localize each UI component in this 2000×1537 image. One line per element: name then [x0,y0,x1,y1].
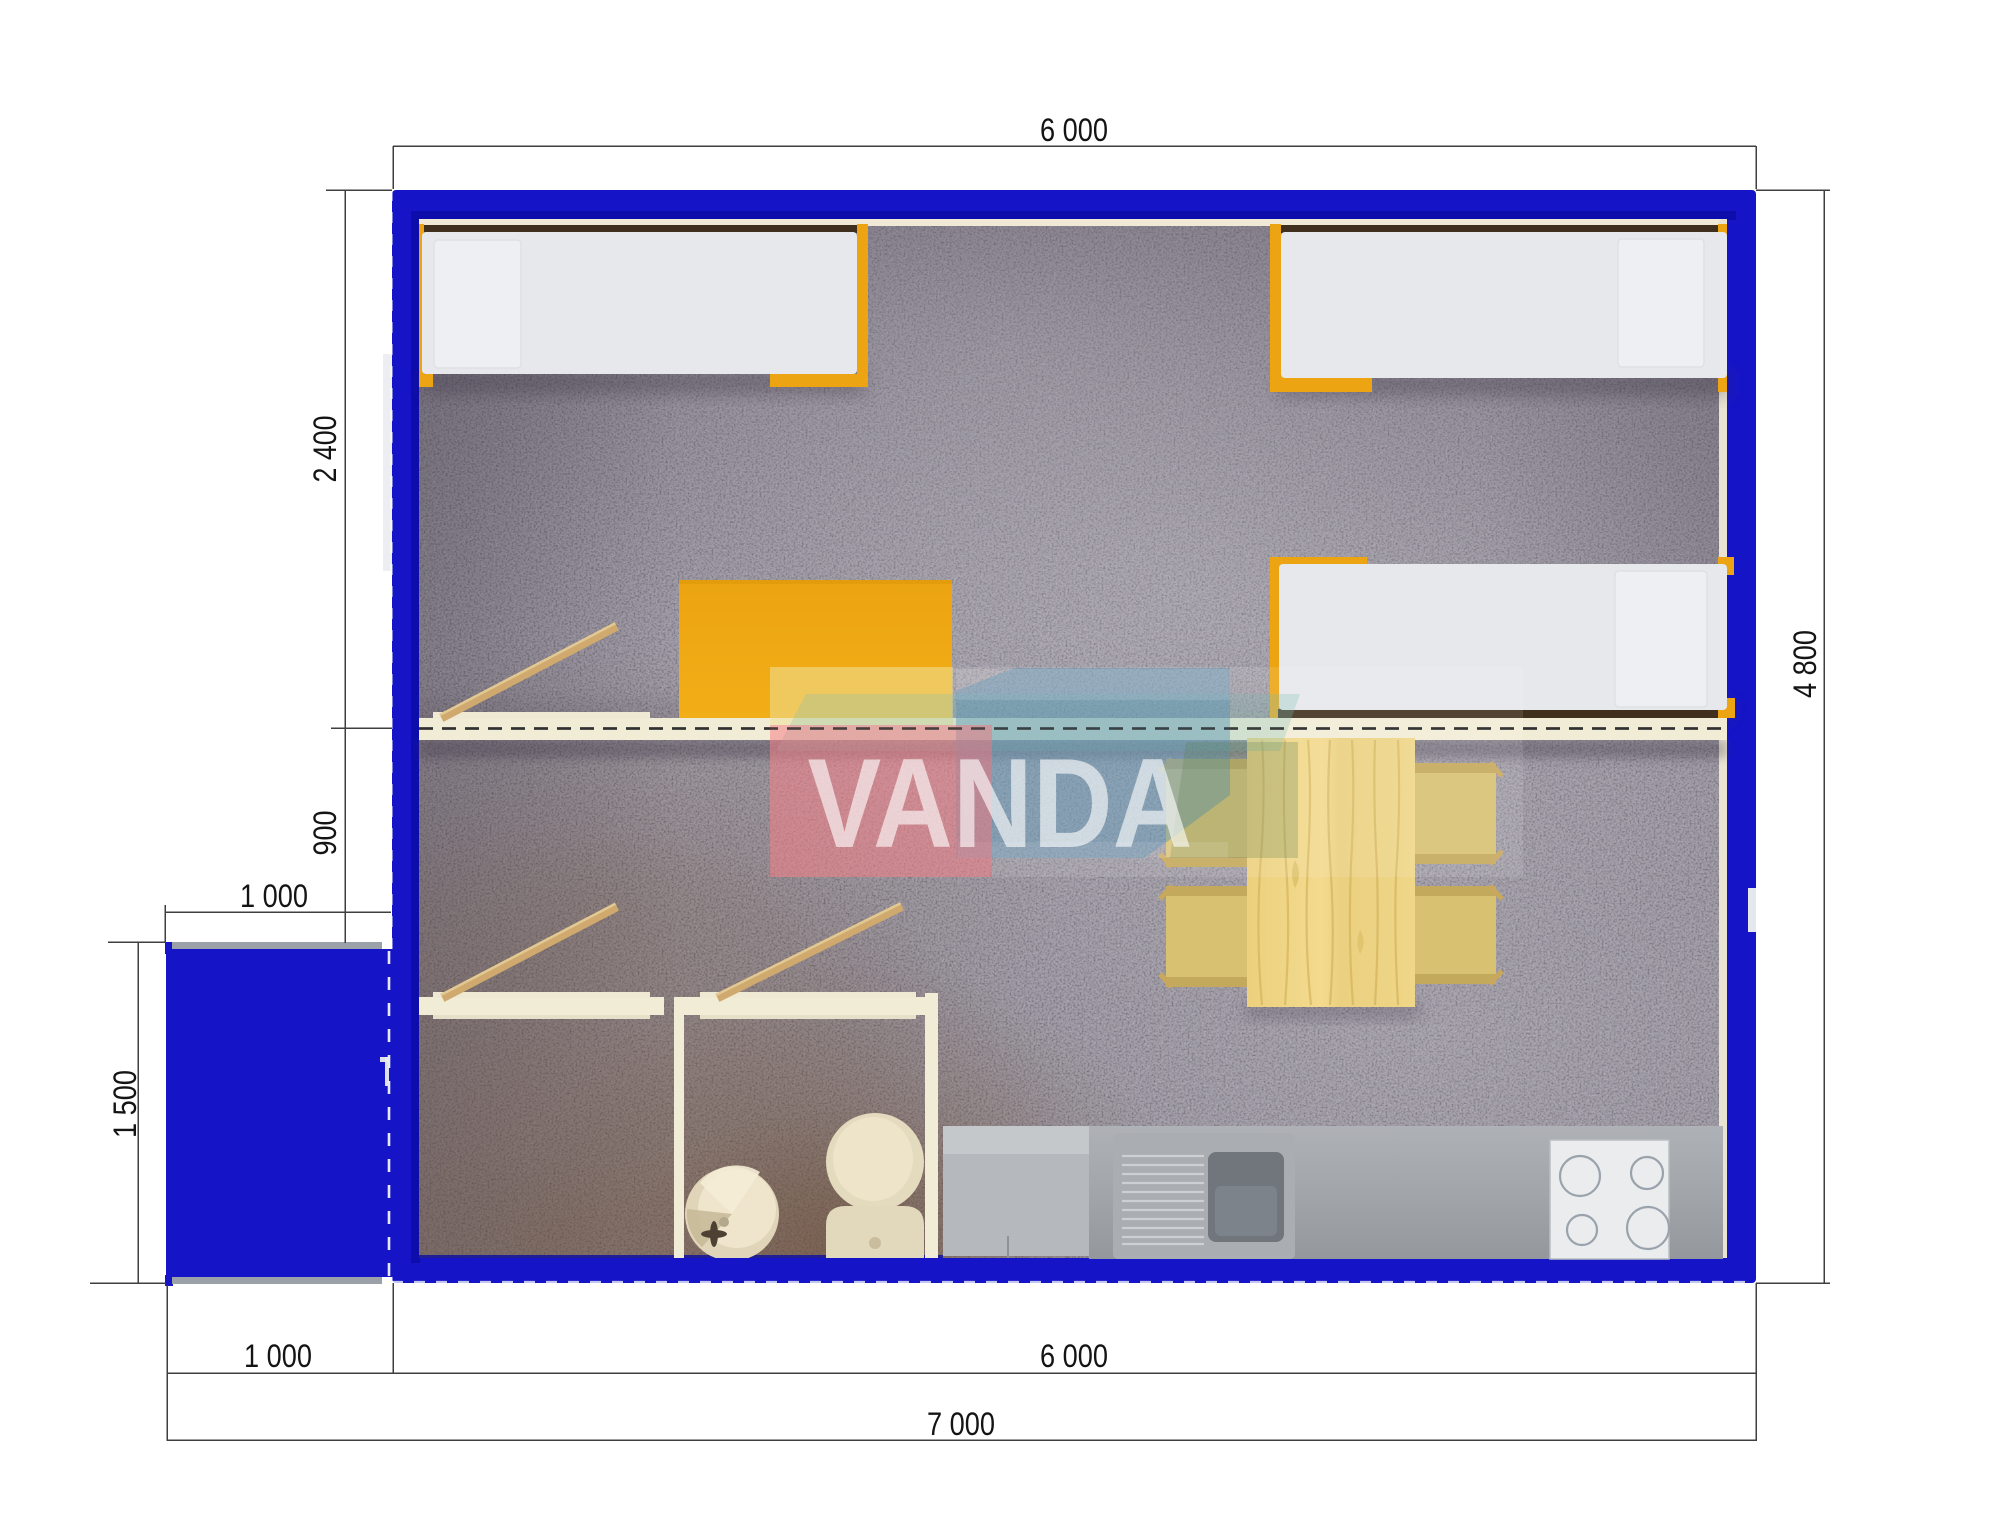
svg-text:2 400: 2 400 [307,416,343,483]
svg-text:7 000: 7 000 [927,1406,995,1442]
svg-text:6 000: 6 000 [1040,112,1108,148]
svg-text:VANDA: VANDA [808,732,1193,874]
svg-text:1 500: 1 500 [107,1070,143,1138]
svg-text:4 800: 4 800 [1787,630,1823,698]
svg-text:6 000: 6 000 [1040,1338,1108,1374]
svg-text:900: 900 [307,811,343,856]
svg-text:1 000: 1 000 [244,1338,312,1374]
svg-text:1 000: 1 000 [240,878,308,914]
